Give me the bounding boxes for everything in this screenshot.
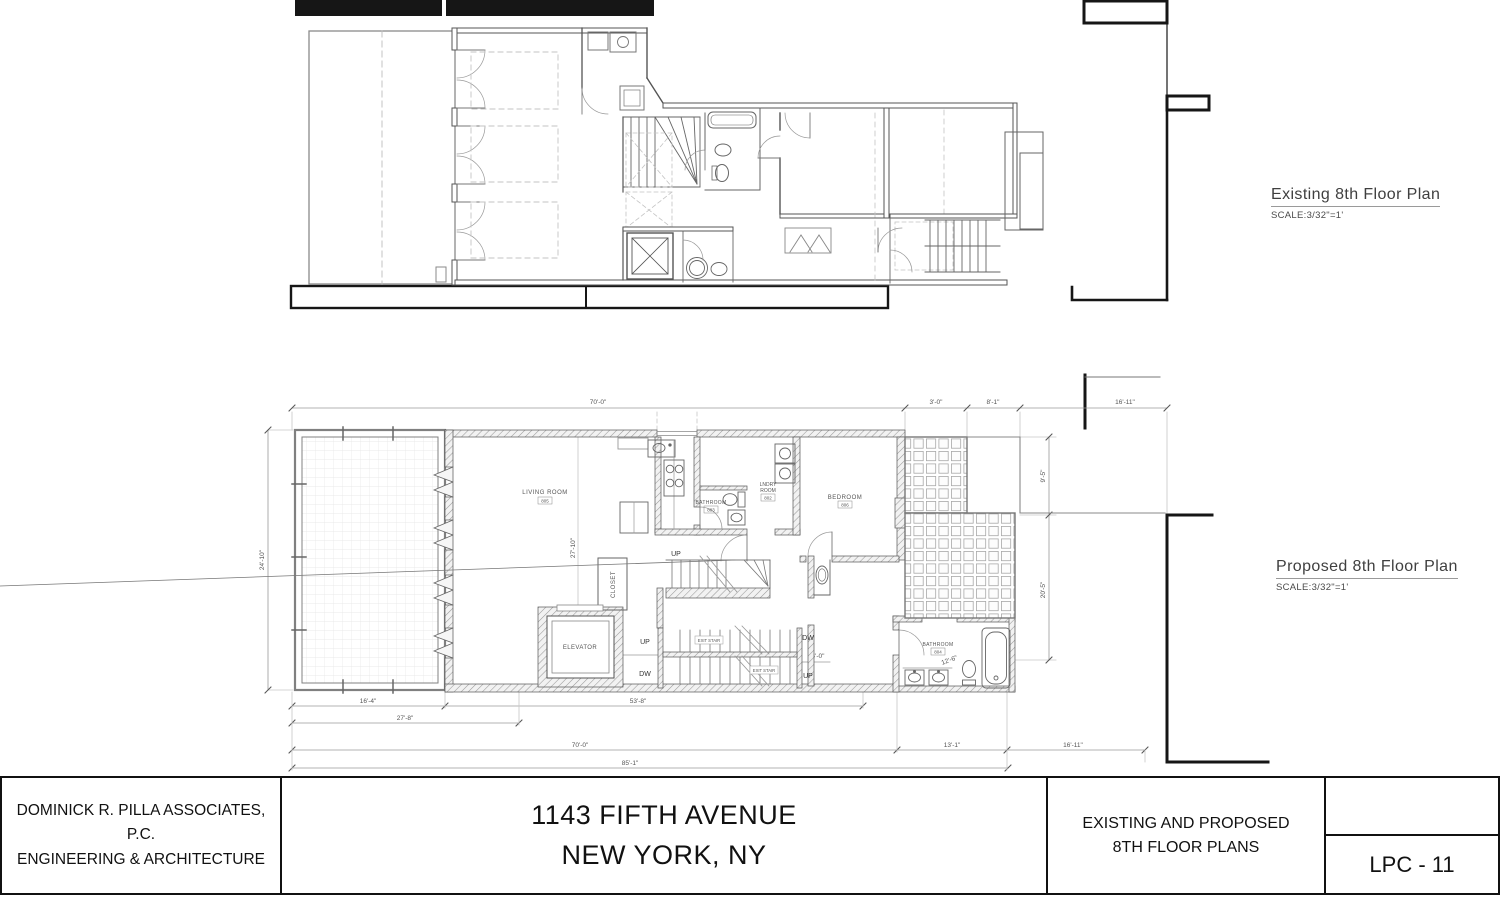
sink-symbol (929, 670, 948, 685)
sheet-number: LPC - 11 (1326, 836, 1498, 893)
sheet-number-empty-box (1326, 778, 1498, 836)
existing-kitchen (582, 28, 644, 114)
firm-name-line1: DOMINICK R. PILLA ASSOCIATES, P.C. (2, 799, 280, 847)
existing-laundry-bath (683, 231, 733, 282)
existing-plan-label: Existing 8th Floor Plan SCALE:3/32"=1' (1271, 186, 1440, 221)
dim-top-overall: 70'-0" (590, 399, 607, 406)
dim-b3a: 70'-0" (572, 742, 589, 749)
exit-stair-label: EXIT STAIR (698, 638, 720, 643)
master-bath-label: BATHROOM (923, 642, 954, 648)
sink-symbol (905, 670, 924, 685)
dim-b1a: 16'-4" (360, 698, 377, 705)
dim-bath-diag: 12'-6" (941, 654, 960, 666)
bathtub-symbol (982, 628, 1010, 688)
dim-top-2: 8'-1" (987, 399, 1001, 406)
project-address: 1143 FIFTH AVENUE (531, 796, 797, 835)
laundry-tag: 802 (764, 496, 772, 501)
dryer-symbol (775, 464, 795, 483)
proposed-plan-title: Proposed 8th Floor Plan (1276, 558, 1458, 579)
proposed-plan-scale: SCALE:3/32"=1' (1276, 582, 1458, 593)
dim-left: 24'-10" (259, 549, 266, 570)
bedroom-label: BEDROOM (828, 495, 863, 501)
proposed-roof-terrace (905, 437, 1165, 618)
dim-right-top: 9'-5" (1040, 469, 1047, 483)
existing-bedroom (758, 108, 889, 283)
proposed-kitchen (618, 438, 684, 533)
fridge-symbol (620, 86, 644, 110)
sheet-number-cell: LPC - 11 (1326, 778, 1498, 893)
sheet-title-cell: EXISTING AND PROPOSED 8TH FLOOR PLANS (1048, 778, 1326, 893)
dim-interior: 27'-10" (570, 537, 577, 558)
dim-b4: 85'-1" (622, 760, 639, 767)
existing-right-room (890, 110, 1043, 230)
exit-stair-label: EXIT STAIR (753, 668, 775, 673)
title-block: DOMINICK R. PILLA ASSOCIATES, P.C. ENGIN… (0, 776, 1500, 895)
existing-floor-plan (291, 0, 1209, 308)
bathroom-tag: 803 (707, 508, 715, 513)
neighbor-building-outline (1085, 375, 1268, 762)
proposed-plan-label: Proposed 8th Floor Plan SCALE:3/32"=1' (1276, 558, 1458, 593)
dim-top-3: 16'-11" (1115, 399, 1135, 406)
proposed-floor-plan: 70'-0" 3'-0" 8'-1" 16'-11" 16'-4" 53'-8"… (0, 375, 1268, 771)
dim-right-bottom: 20'-5" (1040, 581, 1047, 598)
bathroom-label: BATHROOM (696, 500, 727, 506)
firm-name-cell: DOMINICK R. PILLA ASSOCIATES, P.C. ENGIN… (2, 778, 282, 893)
project-title-cell: 1143 FIFTH AVENUE NEW YORK, NY (282, 778, 1048, 893)
sink-symbol (715, 144, 731, 156)
closet-label: CLOSET (611, 571, 617, 598)
dim-top-1: 3'-0" (930, 399, 944, 406)
sheet-title-line1: EXISTING AND PROPOSED (1082, 812, 1289, 836)
floor-plan-sheet: 70'-0" 3'-0" 8'-1" 16'-11" 16'-4" 53'-8"… (0, 0, 1500, 778)
dim-b1b: 53'-8" (630, 698, 647, 705)
proposed-closet: CLOSET (598, 558, 627, 610)
living-room-label: LIVING ROOM (522, 490, 568, 496)
sheet-title-line2: 8TH FLOOR PLANS (1113, 836, 1260, 860)
project-city: NEW YORK, NY (561, 836, 766, 875)
dim-b3b: 13'-1" (944, 742, 961, 749)
stair-up-label: UP (803, 673, 813, 680)
stair-dw-label: DW (802, 635, 814, 642)
closet-symbol (785, 228, 831, 253)
existing-elevator (623, 227, 733, 279)
existing-exit-stair (878, 218, 1000, 283)
existing-winder-stair (623, 117, 700, 280)
toilet-symbol (963, 661, 976, 686)
stair-dw-label: DW (639, 671, 651, 678)
sink-symbol (711, 263, 727, 276)
toilet-symbol (716, 165, 729, 182)
existing-dashed-rects (471, 52, 558, 258)
living-room-tag: 805 (541, 499, 549, 504)
proposed-elevator: ELEVATOR (547, 605, 614, 678)
existing-plan-title: Existing 8th Floor Plan (1271, 186, 1440, 207)
sink-symbol (618, 37, 629, 48)
stair-up-label: UP (671, 551, 681, 558)
laundry-label-2: ROOM (760, 488, 776, 494)
master-bath-tag: 804 (934, 650, 942, 655)
dim-b3c: 16'-11" (1063, 742, 1083, 749)
existing-bathroom-tub (685, 108, 760, 190)
elevator-label: ELEVATOR (563, 645, 597, 651)
sink-symbol (728, 510, 745, 525)
bedroom-tag: 806 (841, 503, 849, 508)
proposed-laundry (775, 444, 795, 483)
dim-b2: 27'-8" (397, 715, 414, 722)
washer-symbol (775, 444, 795, 463)
existing-plan-scale: SCALE:3/32"=1' (1271, 210, 1440, 221)
existing-terrace (309, 31, 455, 284)
stair-up-label: UP (640, 639, 650, 646)
firm-name-line2: ENGINEERING & ARCHITECTURE (17, 848, 265, 872)
proposed-terrace (292, 427, 445, 693)
bathtub-symbol (708, 112, 756, 128)
